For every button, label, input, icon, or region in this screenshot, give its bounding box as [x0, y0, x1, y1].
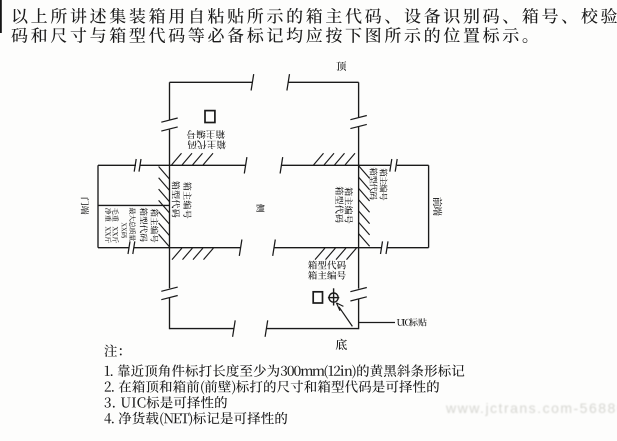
svg-text:www.jctrans.com-56880: www.jctrans.com-56880 — [445, 400, 617, 416]
